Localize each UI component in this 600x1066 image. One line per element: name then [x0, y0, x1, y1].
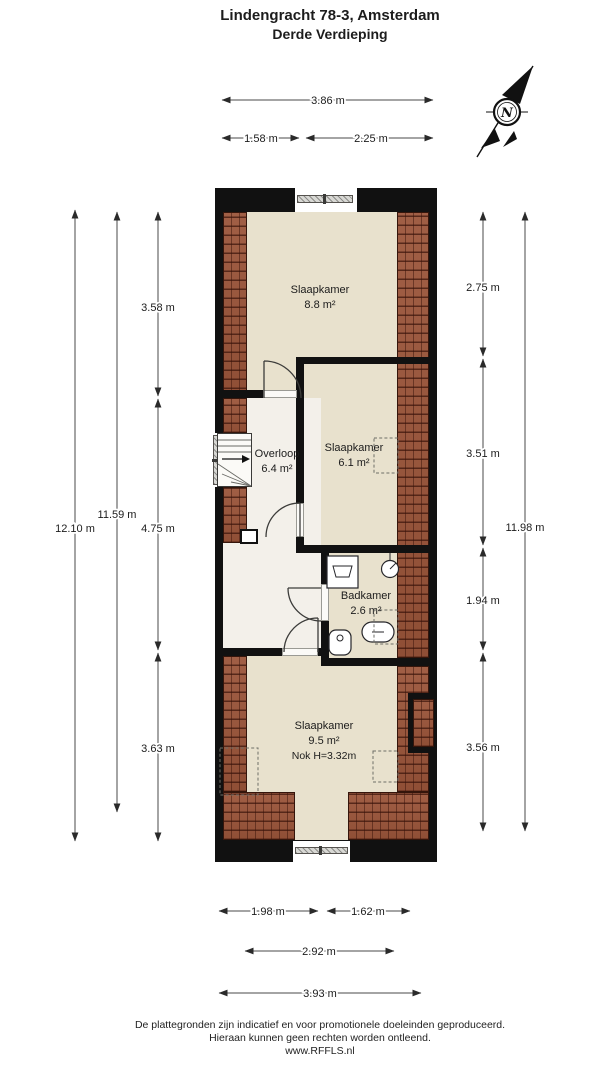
- room-label-slaapkamer-1: Slaapkamer 8.8 m²: [250, 283, 390, 313]
- wall-bath-bottom: [321, 658, 429, 666]
- disclaimer-line1: De plattegronden zijn indicatief en voor…: [40, 1019, 600, 1032]
- roof-strip-left-bottom: [223, 656, 247, 792]
- room-note: Nok H=3.32m: [254, 749, 394, 764]
- room-label-slaapkamer-2: Slaapkamer 6.1 m²: [302, 441, 406, 471]
- room-name: Slaapkamer: [302, 441, 406, 456]
- disclaimer-line2: Hieraan kunnen geen rechten worden ontle…: [40, 1032, 600, 1045]
- room-area: 8.8 m²: [250, 298, 390, 313]
- room-name: Slaapkamer: [254, 719, 394, 734]
- footer-website: www.RFFLS.nl: [40, 1045, 600, 1058]
- roof-strip-bottom-right-wrap: [348, 792, 429, 840]
- threshold-bedroom3: [282, 648, 318, 656]
- wall-hall-bedroom2-b: [296, 537, 304, 545]
- wall-hall-bottom-b: [318, 648, 321, 656]
- floorplan-page: Lindengracht 78-3, Amsterdam Derde Verdi…: [0, 0, 600, 1066]
- window-bottom: [293, 841, 350, 862]
- wall-hall-bedroom2-a: [296, 364, 304, 503]
- threshold-bedroom1: [263, 390, 297, 398]
- threshold-bedroom2: [296, 503, 304, 537]
- room-name: Badkamer: [316, 589, 416, 604]
- wall-niche-inner: [413, 699, 434, 747]
- room-area: 6.1 m²: [302, 456, 406, 471]
- window-top: [295, 188, 357, 212]
- room-area: 2.6 m²: [316, 604, 416, 619]
- wall-bedroom2-bath: [296, 545, 429, 553]
- wall-bath-left-b: [321, 621, 329, 658]
- duct-box: [240, 529, 258, 544]
- room-label-slaapkamer-3: Slaapkamer 9.5 m² Nok H=3.32m: [254, 719, 394, 764]
- roof-strip-bottom-left-wrap: [223, 792, 295, 840]
- wall-bedroom2-top: [296, 357, 429, 364]
- room-name: Slaapkamer: [250, 283, 390, 298]
- room-label-badkamer: Badkamer 2.6 m²: [316, 589, 416, 619]
- room-area: 9.5 m²: [254, 734, 394, 749]
- roof-strip-left-top: [223, 212, 247, 398]
- wall-bath-left-a: [321, 553, 329, 584]
- wall-bedroom1-hall-a: [223, 390, 263, 398]
- wall-hall-bottom-a: [223, 648, 282, 656]
- roof-strip-left-mid1: [223, 398, 247, 433]
- floorplan: [0, 0, 600, 1066]
- footer-disclaimer: De plattegronden zijn indicatief en voor…: [40, 1019, 600, 1058]
